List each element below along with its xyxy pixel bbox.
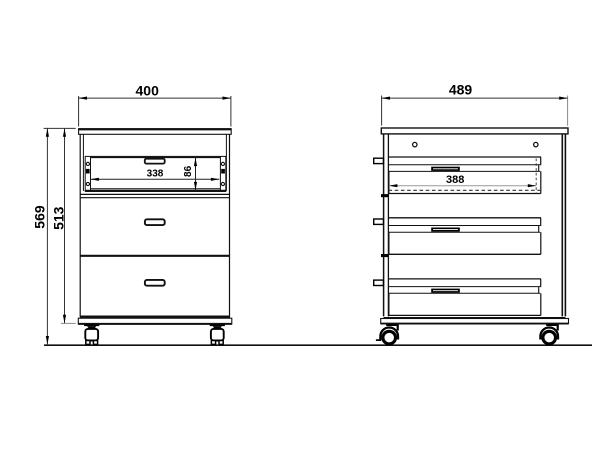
svg-text:338: 338 — [147, 169, 164, 180]
svg-text:513: 513 — [50, 206, 66, 230]
svg-text:86: 86 — [183, 165, 194, 177]
svg-text:388: 388 — [446, 174, 464, 186]
svg-text:489: 489 — [449, 82, 473, 98]
svg-text:569: 569 — [32, 205, 48, 229]
svg-text:400: 400 — [136, 82, 160, 98]
